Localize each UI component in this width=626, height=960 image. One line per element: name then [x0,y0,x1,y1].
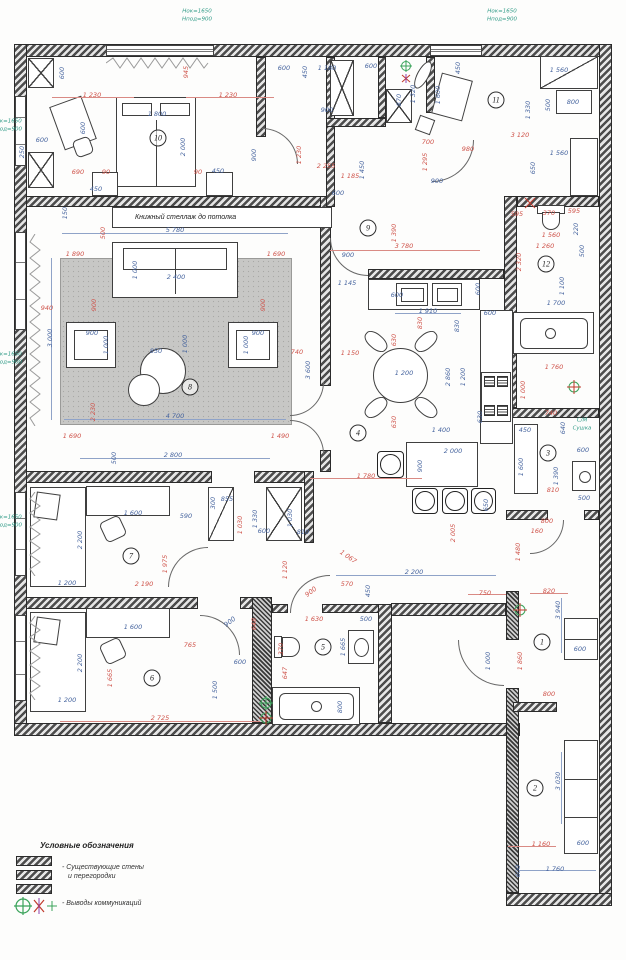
dimension-label: 870 [396,94,403,106]
dimension-label: 1 000 [485,652,492,671]
dimension-label: 1 690 [267,251,286,258]
dimension-label: 600 [475,283,482,295]
dimension-label: 1 390 [553,467,560,486]
dimension-label: 500 [545,99,552,111]
dimension-label: 940 [41,305,53,312]
wardrobe-icon [28,58,54,88]
burner [497,376,508,387]
dimension-label: 830 [417,317,424,329]
chair-room6 [98,636,127,665]
dimension-label: 2 725 [151,715,170,722]
dimension-label: Hпод=900 [182,17,212,23]
dimension-label: 980 [462,146,474,153]
legend-wall-swatch [16,870,52,880]
window-top-right [430,45,482,56]
dimension-label: 1 330 [252,510,259,529]
window-left-room7 [15,492,26,576]
dimension-label: 1 000 [243,336,250,355]
dimension-label: 600 [574,646,586,653]
dimension-label: 1 030 [287,509,294,528]
dimension-label: 1 975 [162,555,169,574]
wall-room1-room2 [513,702,557,712]
wall-outer-right [599,44,612,906]
dimension-label: 595 [568,208,580,215]
dimension-label: 765 [184,642,196,649]
bar-stool [377,451,404,478]
dimension-label: 810 [547,487,559,494]
wall-room7-top [26,471,212,483]
dimension-label: 1 000 [132,261,139,280]
dimension-label: 1 800 [148,111,167,118]
legend-walls-label-line2: и перегородки [62,873,144,882]
dimension-label: 1 760 [546,866,565,873]
dimension-label: 600 [365,63,377,70]
bathtub-room5 [272,687,360,725]
insulation-zigzag-left-living [29,234,41,426]
stove [481,372,511,422]
dimension-label: 800 [567,99,579,106]
dimension-label: Hок=1650 [0,119,22,125]
window-left-living [15,232,26,330]
dimension-label: 740 [291,349,303,356]
wall-outer-bottom-right [506,893,612,906]
bookshelf: Книжный стеллаж до потолка [112,207,332,228]
legend-comm-icon [14,896,58,916]
dimension-label: 700 [422,139,434,146]
dimension-label: 1 230 [296,146,303,165]
dimension-label: 1 500 [212,681,219,700]
dimension-label: 1 665 [107,669,114,688]
room-number-2: 2 [527,780,544,797]
coffee-table-small [128,374,160,406]
dimension-label: 2 800 [164,452,183,459]
dimension-label: 1 630 [305,616,324,623]
room-number-10: 10 [150,130,167,147]
dimension-label: 630 [391,416,398,428]
dimension-label: 900 [342,252,354,259]
dimension-label: Hок=1650 [0,515,22,521]
dimension-label: 600 [258,528,270,535]
dimension-label: 1 600 [435,86,442,105]
insulation-zigzag-left-room7 [29,492,41,576]
dimension-label: 3 120 [511,132,530,139]
wall-outer-top [14,44,612,57]
dimension-label: 2 000 [180,138,187,157]
dimension-label: 900 [91,299,98,311]
legend-title: Условные обозначения [40,841,134,850]
dimension-label: 600 [577,840,589,847]
dimension-label: 500 [111,452,118,464]
dimension-label: 450 [365,585,372,597]
dimension-label: 1 150 [341,350,360,357]
dimension-label: 2 005 [450,524,457,543]
insulation-zigzag-left-room6 [29,616,41,700]
dimension-label: 900 [252,330,264,337]
closet-room1 [564,618,598,660]
nightstand [206,172,233,196]
dimension-label: 1 000 [520,381,527,400]
dimension-label: 600 [36,137,48,144]
dimension-label: 900 [417,460,424,472]
dimension-label: 160 [531,528,543,535]
sink-basin [437,288,458,302]
dimension-label: 1 145 [338,280,357,287]
dimension-label: 1 185 [341,173,360,180]
dimension-label: 1 490 [271,433,290,440]
dimension-label: 900 [86,330,98,337]
dimension-label: 300 [210,497,217,509]
wall-hall-bottom [391,603,506,616]
dimension-label: 1 910 [419,308,438,315]
door-arc-living-a [290,382,324,416]
dimension-label: 1 180 [318,65,337,72]
sofa-split [175,248,176,294]
dimension-label: 1 600 [518,458,525,477]
wall-closet-bottom [326,118,386,127]
stool [415,115,436,136]
dimension-label: 690 [72,169,84,176]
dimension-label: 1 560 [542,232,561,239]
dimension-label: С/М [577,418,587,424]
bench-room11 [570,138,598,196]
dimension-label: 2 000 [444,448,463,455]
dimension-label: 3 030 [555,772,562,791]
dimension-label: 2 400 [167,274,186,281]
communication-outlet-icon [523,196,537,210]
dimension-label: 1 330 [525,101,532,120]
dimension-label: 900 [321,107,333,114]
communication-outlet-icon [398,60,414,84]
burner [484,405,495,416]
dimension-label: 600 [332,190,344,197]
dimension-label: 648 [251,618,258,630]
dimension-label: 90 [194,169,202,176]
communication-outlet-icon [566,378,582,396]
kitchen-sink [432,283,462,306]
shelf-line [565,639,597,640]
dimension-label: 3 940 [555,601,562,620]
dimension-label: 250 [19,146,26,158]
dimension-label: 500 [578,495,590,502]
dimension-label: 1 295 [422,153,429,172]
wall-bedroom-living [26,196,326,207]
dimension-label: 500 [100,227,107,239]
dimension-label: 5 780 [166,227,185,234]
bookshelf-label: Книжный стеллаж до потолка [135,214,236,221]
dimension-label: 1 480 [515,543,522,562]
dimension-label: 800 [541,518,553,525]
dimension-label: 3 000 [47,329,54,348]
wall-room3-hall-b [584,510,599,520]
door-arc-room10 [262,128,298,164]
dimension-label: Hпод=900 [0,360,22,366]
washing-machine [572,461,596,491]
room-number-1: 1 [534,634,551,651]
wall-column-left-b [506,688,519,893]
floor-plan-canvas: Книжный стеллаж до потолка [0,0,626,960]
dimension-label: 370 [278,643,285,655]
door-arc-living-b [290,420,324,454]
dimension-label: Hпод=900 [0,127,22,133]
dimension-label: 600 [80,122,87,134]
insulation-zigzag-top [106,57,214,69]
dimension-label: 590 [180,513,192,520]
legend-wall-swatch [16,884,52,894]
dimension-label: 1 000 [182,335,189,354]
dimension-label: 650 [530,162,537,174]
communication-outlet-icon [258,696,274,726]
dimension-label: 900 [251,149,258,161]
dimension-label: 1 665 [340,638,347,657]
dimension-label: 820 [543,588,555,595]
dimension-label: 2 230 [90,403,97,422]
dimension-label: 600 [577,447,589,454]
dimension-label: 800 [337,701,344,713]
dimension-label: 450 [302,66,309,78]
dimension-label: 600 [391,292,403,299]
dimension-label: Hок=1650 [182,9,211,15]
dimension-label: 600 [278,65,290,72]
dining-chair [411,327,441,355]
wall-kitchen-top [368,269,504,279]
dimension-label: 570 [341,581,353,588]
dimension-label: 450 [212,168,224,175]
dimension-label: 1 200 [395,370,414,377]
dimension-label: Hок=1650 [487,9,516,15]
door-arc-entrance [458,640,504,686]
dimension-label: 1 230 [83,92,102,99]
dimension-label: 630 [477,411,484,423]
burner [484,376,495,387]
dimension-label: 1 560 [550,67,569,74]
dimension-label: 595 [511,211,523,218]
dimension-label: 1 560 [550,150,569,157]
burner [497,405,508,416]
dimension-label: 150 [62,207,69,219]
dimension-label: 900 [223,616,237,629]
communication-outlet-icon [512,601,528,619]
bathtub-drain [311,701,322,712]
dimension-label: 2 200 [405,569,424,576]
dimension-label: 1 200 [58,580,77,587]
dimension-label: 900 [260,299,267,311]
room-number-6: 6 [144,670,161,687]
dimension-label: 800 [543,691,555,698]
dimension-label: Hпод=900 [487,17,517,23]
bar-stool [412,488,438,514]
dimension-label: 1 320 [410,85,417,104]
dimension-label: 3 780 [395,243,414,250]
chair-room7 [98,514,127,543]
dimension-label: 630 [391,334,398,346]
wall-closet-right [378,57,386,118]
shelf-line [565,779,597,780]
dimension-label: 4 700 [166,413,185,420]
bathroom-sink [348,630,374,664]
dimension-label: 1 600 [124,510,143,517]
dimension-label: Сушка [573,426,592,432]
dimension-label: 450 [519,427,531,434]
legend-wall-swatch [16,856,52,866]
dimension-label: 640 [560,422,567,434]
dining-chair [411,393,441,421]
wardrobe-icon [28,152,54,188]
dimension-label: 450 [455,62,462,74]
bathtub-drain [545,328,556,339]
dimension-label: 650 [483,499,490,511]
bar-stool [442,488,468,514]
dimension-label: 1 260 [536,243,555,250]
dimension-label: 90 [102,169,110,176]
room-number-5: 5 [315,639,332,656]
dimension-label: 647 [282,667,289,679]
wall-bath5-right [378,604,392,723]
dimension-label: 1 000 [103,336,110,355]
room-number-4: 4 [350,425,367,442]
wall-bath5-top-a [272,604,288,613]
dimension-label: Hок=1650 [0,352,22,358]
dimension-label: 750 [479,590,491,597]
room-number-7: 7 [123,548,140,565]
dimension-label: 1 030 [237,516,244,535]
dimension-label: 830 [454,320,461,332]
dimension-label: 1 760 [545,364,564,371]
legend-walls-label-line1: - Существующие стены [62,864,144,873]
room-number-3: 3 [540,445,557,462]
dimension-label: 2 255 [317,163,336,170]
dimension-label: 1 230 [219,92,238,99]
dimension-label: 1 690 [63,433,82,440]
dimension-label: 1 390 [391,224,398,243]
dimension-label: 600 [515,865,522,877]
dimension-label: 1 450 [359,161,366,180]
legend-comm-label: - Выводы коммуникаций [62,900,141,909]
dimension-label: 2 190 [135,581,154,588]
closet-room2 [564,740,598,854]
window-top-left [106,45,214,56]
dimension-label: 1 100 [559,277,566,296]
dimension-label: 1 160 [532,841,551,848]
room-number-8: 8 [182,379,199,396]
dimension-label: 740 [545,410,557,417]
door-arc-room7 [168,547,208,587]
dimension-label: 900 [431,178,443,185]
dimension-label: 600 [234,659,246,666]
dimension-label: 2 200 [77,531,84,550]
dimension-label: 1 067 [339,549,358,565]
dimension-label: 1 120 [282,561,289,580]
dimension-label: 1 600 [124,624,143,631]
shelf-line [565,817,597,818]
door-arc-column-hall [530,520,564,554]
dimension-label: 855 [221,496,233,503]
dimension-label: 850 [150,348,162,355]
dimension-label: 1 860 [517,652,524,671]
dimension-label: 500 [360,616,372,623]
dimension-label: 1 400 [432,427,451,434]
wardrobe-rod [540,56,598,89]
dimension-label: 810 [297,529,309,536]
dimension-label: 450 [90,186,102,193]
dimension-label: 1 200 [460,368,467,387]
washer-drum [579,471,591,483]
bathtub-room12 [513,312,594,354]
dimension-label: 1 780 [357,473,376,480]
dimension-label: 600 [59,67,66,79]
room-number-12: 12 [538,256,555,273]
room-number-11: 11 [488,92,505,109]
dimension-label: 370 [543,210,555,217]
room-number-9: 9 [360,220,377,237]
dimension-label: 500 [579,245,586,257]
dimension-label: 1 200 [58,697,77,704]
dimension-label: 220 [573,223,580,235]
dimension-label: 2 200 [77,654,84,673]
dimension-label: 1 890 [66,251,85,258]
sink-basin [401,288,424,302]
dimension-label: 3 600 [305,361,312,380]
legend-walls-label: - Существующие стены и перегородки [62,864,144,882]
sink-basin [354,638,369,657]
dimension-label: Hпод=900 [0,523,22,529]
window-left-room6 [15,615,26,701]
dimension-label: 2 860 [445,368,452,387]
dimension-label: 600 [484,310,496,317]
dimension-label: 945 [183,66,190,78]
wall-closet7-top [254,471,310,483]
dimension-label: 2 320 [516,253,523,272]
dimension-label: 1 700 [547,300,566,307]
